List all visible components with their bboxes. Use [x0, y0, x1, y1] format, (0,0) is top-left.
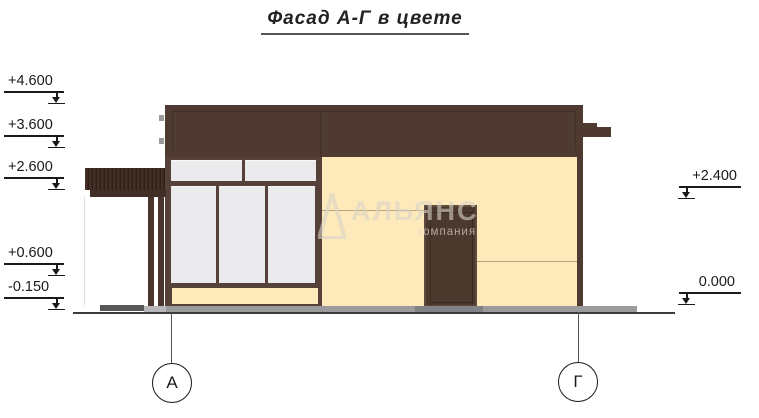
- window-pane: [219, 186, 265, 283]
- canopy-fascia: [90, 190, 166, 197]
- canopy-post: [158, 197, 164, 307]
- roof-bracket-icon: [159, 115, 164, 121]
- axis-bubble-a: А: [152, 363, 192, 403]
- corner-trim-right: [577, 157, 583, 307]
- canopy: [85, 168, 165, 190]
- roof-beam: [583, 123, 597, 137]
- facade-drawing: Фасад А-Г в цвете АЛЬЯНС компания А: [0, 0, 759, 418]
- spandrel-panel: [172, 288, 318, 304]
- window-pane: [171, 186, 216, 283]
- window-pane: [268, 186, 315, 283]
- wall-seam: [476, 261, 577, 262]
- ground-line: [73, 312, 675, 314]
- title-block: Фасад А-Г в цвете: [230, 8, 500, 35]
- axis-bubble-g: Г: [558, 362, 598, 402]
- drawing-title: Фасад А-Г в цвете: [261, 8, 468, 35]
- canopy-drip-line: [84, 197, 85, 305]
- roof-inner-outline: [172, 111, 576, 151]
- axis-line-a: [171, 313, 172, 364]
- watermark-subtitle: компания: [417, 226, 476, 238]
- axis-line-g: [578, 312, 579, 363]
- roof-beam-end: [597, 127, 611, 137]
- canopy-post: [148, 197, 154, 307]
- watermark-logo-icon: [318, 193, 346, 239]
- axis-label-g: Г: [573, 372, 582, 392]
- axis-label-a: А: [166, 373, 177, 393]
- transom-window: [171, 160, 242, 181]
- walkway-slab: [100, 305, 144, 311]
- roof-bracket-icon: [159, 138, 164, 144]
- roof-seam: [320, 111, 321, 157]
- watermark-name: АЛЬЯНС: [351, 196, 479, 227]
- transom-window: [245, 160, 316, 181]
